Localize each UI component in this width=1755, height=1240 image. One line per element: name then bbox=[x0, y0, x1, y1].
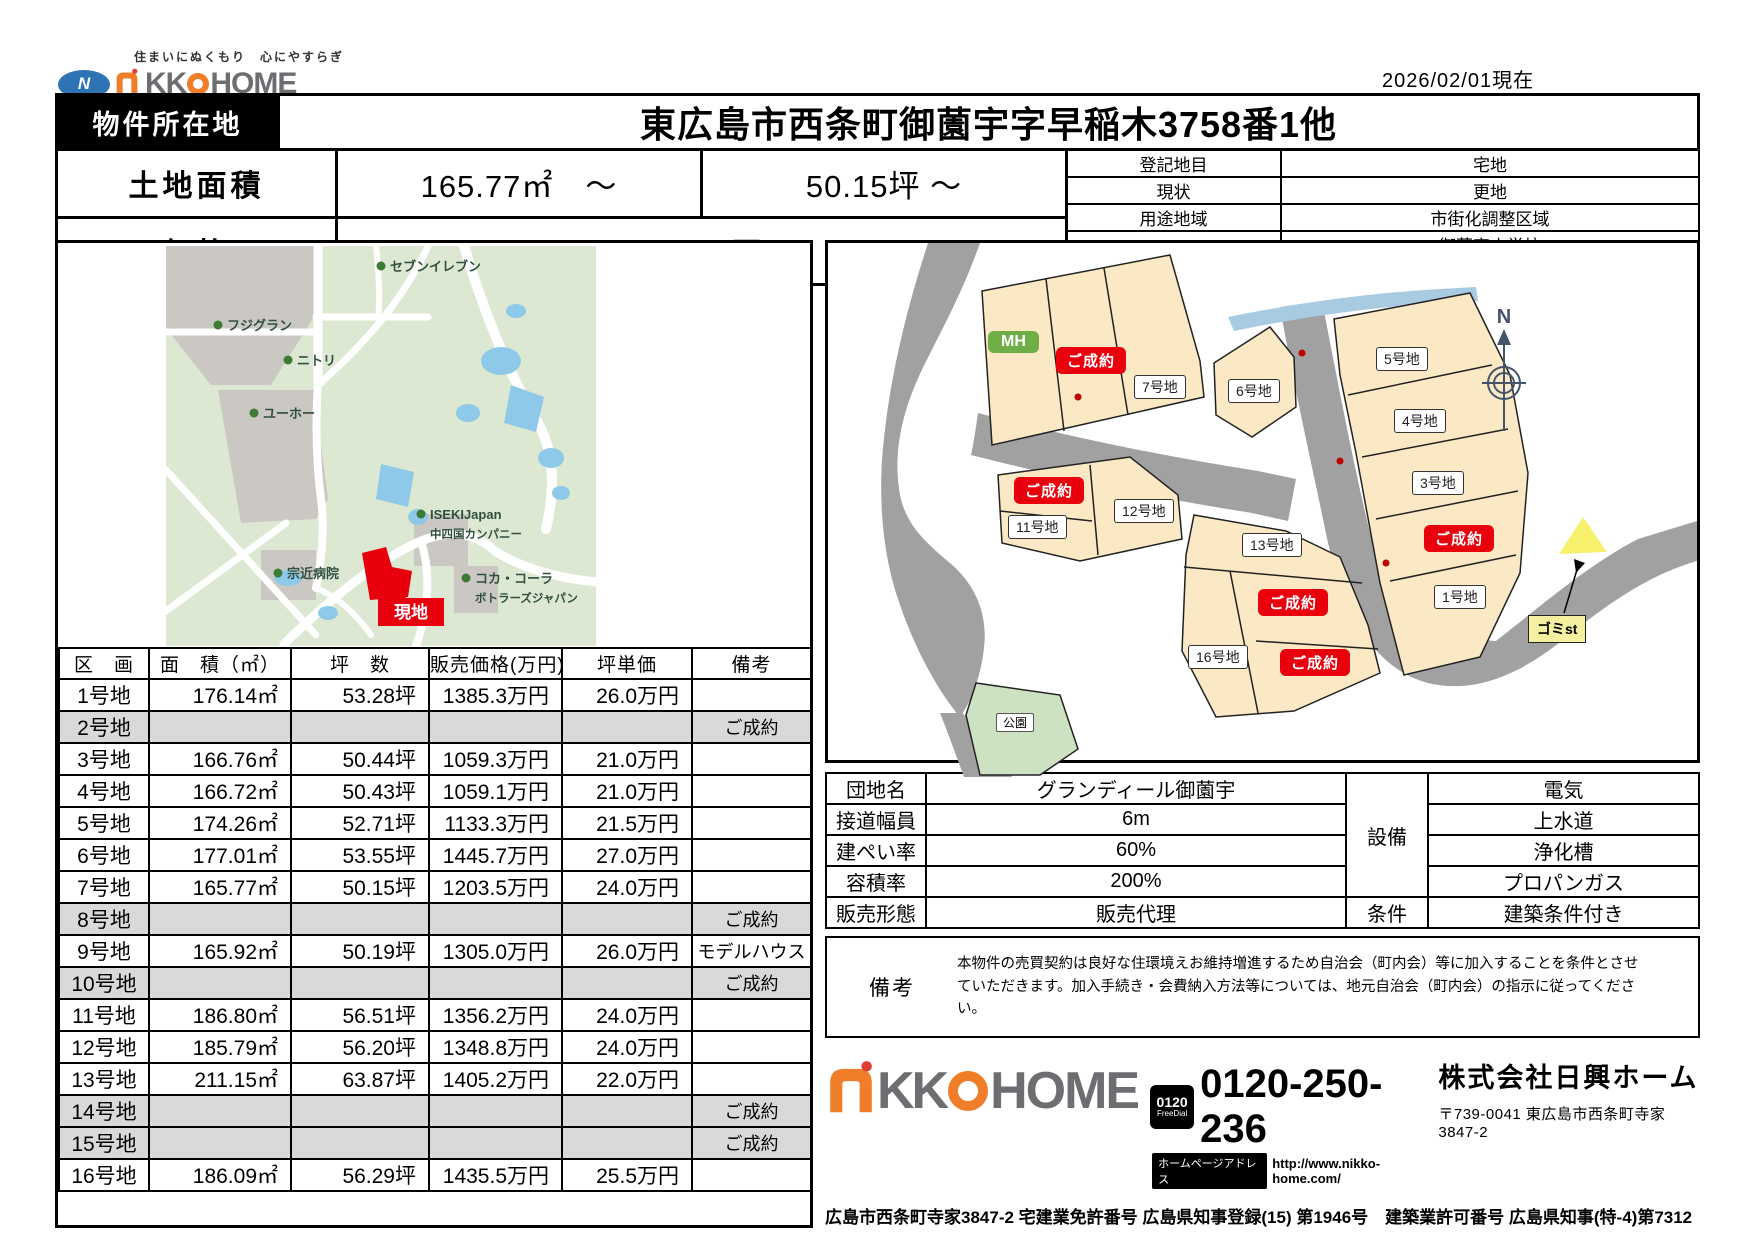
table-cell: 63.87坪 bbox=[291, 1063, 429, 1095]
table-cell bbox=[692, 871, 811, 903]
table-cell: 211.15㎡ bbox=[149, 1063, 291, 1095]
table-cell: 52.71坪 bbox=[291, 807, 429, 839]
table-cell bbox=[562, 1095, 692, 1127]
table-cell: 24.0万円 bbox=[562, 999, 692, 1031]
table-row: 1号地176.14㎡53.28坪1385.3万円26.0万円 bbox=[59, 679, 811, 711]
right-column: N MH ご成約 7号地 6号地 5号地 4号地 3号地 ご成約 bbox=[825, 240, 1700, 1228]
col-header: 面 積（㎡） bbox=[149, 648, 291, 679]
table-cell: 165.92㎡ bbox=[149, 935, 291, 967]
info-label: 用途地域 bbox=[1066, 204, 1281, 231]
nikko-home-logo-footer: KK HOME bbox=[825, 1060, 1138, 1121]
location-value: 東広島市西条町御薗宇字早稲木3758番1他 bbox=[279, 95, 1699, 150]
land-area-label: 土地面積 bbox=[57, 150, 337, 218]
poi-label: フジグラン bbox=[227, 318, 292, 333]
table-cell bbox=[291, 903, 429, 935]
table-cell bbox=[692, 743, 811, 775]
poi-sublabel: 中四国カンパニー bbox=[430, 527, 522, 541]
equipment-value: 浄化槽 bbox=[1428, 835, 1699, 866]
area-map: セブンイレブン フジグラン ニトリ ユーホー ISEKIJapan 中四国カンパ… bbox=[58, 243, 810, 647]
table-cell: 25.5万円 bbox=[562, 1159, 692, 1191]
table-cell: 50.19坪 bbox=[291, 935, 429, 967]
table-cell: 1435.5万円 bbox=[429, 1159, 562, 1191]
table-cell bbox=[562, 903, 692, 935]
table-cell bbox=[291, 1127, 429, 1159]
table-cell: 6号地 bbox=[59, 839, 149, 871]
info-value: 更地 bbox=[1281, 177, 1699, 204]
equipment-value: プロパンガス bbox=[1428, 866, 1699, 897]
poi-label: コカ・コーラ bbox=[475, 571, 553, 586]
table-cell: 15号地 bbox=[59, 1127, 149, 1159]
detail-value: 60% bbox=[926, 835, 1346, 866]
model-house-badge: MH bbox=[988, 331, 1039, 353]
lot-layout-diagram: N MH ご成約 7号地 6号地 5号地 4号地 3号地 ご成約 bbox=[825, 240, 1700, 763]
park-label: 公園 bbox=[996, 713, 1034, 732]
homepage-label: ホームページアドレス bbox=[1152, 1153, 1267, 1189]
lot-label-6: 6号地 bbox=[1228, 379, 1280, 403]
table-cell: 24.0万円 bbox=[562, 1031, 692, 1063]
sold-badge: ご成約 bbox=[1258, 589, 1328, 616]
land-area-tsubo: 50.15坪 ～ bbox=[702, 150, 1067, 218]
table-cell bbox=[692, 775, 811, 807]
table-cell: 1059.1万円 bbox=[429, 775, 562, 807]
detail-label: 団地名 bbox=[826, 773, 926, 804]
poi-sublabel: ボトラーズジャパン bbox=[475, 591, 578, 605]
table-row: 3号地166.76㎡50.44坪1059.3万円21.0万円 bbox=[59, 743, 811, 775]
table-cell: 7号地 bbox=[59, 871, 149, 903]
table-row: 11号地186.80㎡56.51坪1356.2万円24.0万円 bbox=[59, 999, 811, 1031]
col-header: 坪 数 bbox=[291, 648, 429, 679]
detail-label: 建ぺい率 bbox=[826, 835, 926, 866]
table-cell bbox=[149, 967, 291, 999]
table-cell: 21.5万円 bbox=[562, 807, 692, 839]
table-cell: 4号地 bbox=[59, 775, 149, 807]
table-cell bbox=[692, 1031, 811, 1063]
company-name: 株式会社日興ホーム bbox=[1438, 1056, 1700, 1095]
table-cell: ご成約 bbox=[692, 967, 811, 999]
table-cell: 176.14㎡ bbox=[149, 679, 291, 711]
table-cell bbox=[291, 967, 429, 999]
table-row: 9号地165.92㎡50.19坪1305.0万円26.0万円モデルハウス bbox=[59, 935, 811, 967]
table-cell bbox=[429, 1127, 562, 1159]
sold-badge: ご成約 bbox=[1424, 525, 1494, 552]
table-cell bbox=[429, 711, 562, 743]
detail-label: 容積率 bbox=[826, 866, 926, 897]
col-header: 坪単価 bbox=[562, 648, 692, 679]
table-cell bbox=[429, 903, 562, 935]
table-row: 12号地185.79㎡56.20坪1348.8万円24.0万円 bbox=[59, 1031, 811, 1063]
table-cell bbox=[149, 1127, 291, 1159]
table-cell: 50.43坪 bbox=[291, 775, 429, 807]
brand-slogan: 住まいにぬくもり 心にやすらぎ bbox=[134, 48, 344, 65]
table-cell bbox=[692, 1063, 811, 1095]
table-row: 16号地186.09㎡56.29坪1435.5万円25.5万円 bbox=[59, 1159, 811, 1191]
info-label: 登記地目 bbox=[1066, 150, 1281, 178]
poi-label: セブンイレブン bbox=[390, 259, 481, 274]
table-cell: ご成約 bbox=[692, 711, 811, 743]
table-cell bbox=[562, 967, 692, 999]
street-map-graphic: セブンイレブン フジグラン ニトリ ユーホー ISEKIJapan 中四国カンパ… bbox=[166, 246, 596, 646]
equipment-label: 設備 bbox=[1346, 773, 1428, 897]
table-cell: ご成約 bbox=[692, 903, 811, 935]
lot-table-body: 1号地176.14㎡53.28坪1385.3万円26.0万円2号地ご成約3号地1… bbox=[59, 679, 811, 1191]
table-cell: 5号地 bbox=[59, 807, 149, 839]
lot-label-13: 13号地 bbox=[1242, 533, 1302, 557]
table-cell: 13号地 bbox=[59, 1063, 149, 1095]
table-cell: 53.28坪 bbox=[291, 679, 429, 711]
table-cell bbox=[562, 1127, 692, 1159]
remarks-box: 備考 本物件の売買契約は良好な住環境えお維持増進するため自治会（町内会）等に加入… bbox=[825, 936, 1700, 1038]
table-cell: 3号地 bbox=[59, 743, 149, 775]
lot-table-header-row: 区 画 面 積（㎡） 坪 数 販売価格(万円) 坪単価 備考 bbox=[59, 648, 811, 679]
lot-layout-graphic: N bbox=[828, 243, 1697, 777]
detail-value: 販売代理 bbox=[926, 897, 1346, 928]
col-header: 販売価格(万円) bbox=[429, 648, 562, 679]
compass-north-label: N bbox=[1497, 306, 1511, 328]
table-row: 10号地ご成約 bbox=[59, 967, 811, 999]
land-area-sqm: 165.77㎡ ～ bbox=[337, 150, 702, 218]
table-row: 15号地ご成約 bbox=[59, 1127, 811, 1159]
table-row: 4号地166.72㎡50.43坪1059.1万円21.0万円 bbox=[59, 775, 811, 807]
table-cell: 1133.3万円 bbox=[429, 807, 562, 839]
table-cell: 174.26㎡ bbox=[149, 807, 291, 839]
details-table: 団地名 グランディール御薗宇 設備 電気 接道幅員 6m 上水道 建ぺい率 60… bbox=[825, 772, 1700, 929]
table-cell: 177.01㎡ bbox=[149, 839, 291, 871]
detail-label: 販売形態 bbox=[826, 897, 926, 928]
table-cell bbox=[562, 711, 692, 743]
detail-value: グランディール御薗宇 bbox=[926, 773, 1346, 804]
table-cell: 166.72㎡ bbox=[149, 775, 291, 807]
poi-label: ユーホー bbox=[263, 406, 315, 421]
lot-label-3: 3号地 bbox=[1412, 471, 1464, 495]
info-value: 宅地 bbox=[1281, 150, 1699, 178]
table-cell: 56.20坪 bbox=[291, 1031, 429, 1063]
remarks-text: 本物件の売買契約は良好な住環境えお維持増進するため自治会（町内会）等に加入するこ… bbox=[957, 943, 1657, 1030]
table-cell: 22.0万円 bbox=[562, 1063, 692, 1095]
table-cell bbox=[291, 711, 429, 743]
table-cell: 185.79㎡ bbox=[149, 1031, 291, 1063]
poi-label: ニトリ bbox=[297, 353, 336, 368]
detail-value: 6m bbox=[926, 804, 1346, 835]
sold-badge: ご成約 bbox=[1056, 347, 1126, 374]
equipment-value: 電気 bbox=[1428, 773, 1699, 804]
table-cell: 50.15坪 bbox=[291, 871, 429, 903]
detail-label: 接道幅員 bbox=[826, 804, 926, 835]
location-table: 物件所在地 東広島市西条町御薗宇字早稲木3758番1他 bbox=[55, 93, 1700, 151]
table-cell: 166.76㎡ bbox=[149, 743, 291, 775]
table-cell: 16号地 bbox=[59, 1159, 149, 1191]
table-row: 14号地ご成約 bbox=[59, 1095, 811, 1127]
table-cell: 24.0万円 bbox=[562, 871, 692, 903]
location-label: 物件所在地 bbox=[57, 95, 279, 150]
lot-label-7: 7号地 bbox=[1134, 375, 1186, 399]
table-cell: 1号地 bbox=[59, 679, 149, 711]
table-cell: 1305.0万円 bbox=[429, 935, 562, 967]
remarks-label: 備考 bbox=[827, 972, 957, 1002]
table-cell: 1445.7万円 bbox=[429, 839, 562, 871]
table-cell bbox=[429, 967, 562, 999]
lot-label-16: 16号地 bbox=[1188, 645, 1248, 669]
table-cell: 2号地 bbox=[59, 711, 149, 743]
sold-badge: ご成約 bbox=[1280, 649, 1350, 676]
equipment-value: 上水道 bbox=[1428, 804, 1699, 835]
info-label: 現状 bbox=[1066, 177, 1281, 204]
table-cell: 1385.3万円 bbox=[429, 679, 562, 711]
col-header: 備考 bbox=[692, 648, 811, 679]
table-cell bbox=[149, 903, 291, 935]
table-cell bbox=[429, 1095, 562, 1127]
left-column: セブンイレブン フジグラン ニトリ ユーホー ISEKIJapan 中四国カンパ… bbox=[55, 240, 813, 1228]
sold-badge: ご成約 bbox=[1014, 477, 1084, 504]
company-address: 〒739-0041 東広島市西条町寺家3847-2 bbox=[1438, 1103, 1700, 1141]
table-cell: 1203.5万円 bbox=[429, 871, 562, 903]
table-row: 8号地ご成約 bbox=[59, 903, 811, 935]
table-cell: 56.51坪 bbox=[291, 999, 429, 1031]
table-cell: 56.29坪 bbox=[291, 1159, 429, 1191]
homepage-url: http://www.nikko-home.com/ bbox=[1272, 1156, 1438, 1186]
lot-label-5: 5号地 bbox=[1376, 347, 1428, 371]
logo-text-kk: KK bbox=[877, 1061, 946, 1121]
date-note: 2026/02/01現在 bbox=[1382, 64, 1534, 93]
lot-label-12: 12号地 bbox=[1114, 499, 1174, 523]
table-cell bbox=[149, 1095, 291, 1127]
table-cell bbox=[692, 1159, 811, 1191]
license-info: 広島市西条町寺家3847-2 宅建業免許番号 広島県知事登録(15) 第1946… bbox=[825, 1203, 1700, 1228]
table-cell: ご成約 bbox=[692, 1095, 811, 1127]
house-icon bbox=[825, 1060, 877, 1121]
table-cell: 1348.8万円 bbox=[429, 1031, 562, 1063]
table-row: 5号地174.26㎡52.71坪1133.3万円21.5万円 bbox=[59, 807, 811, 839]
table-cell: 53.55坪 bbox=[291, 839, 429, 871]
info-value: 市街化調整区域 bbox=[1281, 204, 1699, 231]
logo-o-icon bbox=[187, 73, 209, 95]
table-cell: 1059.3万円 bbox=[429, 743, 562, 775]
table-cell: 9号地 bbox=[59, 935, 149, 967]
poi-label: 宗近病院 bbox=[287, 566, 339, 581]
table-cell: 10号地 bbox=[59, 967, 149, 999]
lot-price-table: 区 画 面 積（㎡） 坪 数 販売価格(万円) 坪単価 備考 1号地176.14… bbox=[58, 647, 812, 1192]
table-cell bbox=[291, 1095, 429, 1127]
lot-label-4: 4号地 bbox=[1394, 409, 1446, 433]
table-cell: 14号地 bbox=[59, 1095, 149, 1127]
table-cell bbox=[692, 679, 811, 711]
table-cell: 26.0万円 bbox=[562, 679, 692, 711]
table-cell: ご成約 bbox=[692, 1127, 811, 1159]
detail-value: 200% bbox=[926, 866, 1346, 897]
table-cell bbox=[692, 807, 811, 839]
table-cell bbox=[149, 711, 291, 743]
table-cell bbox=[692, 999, 811, 1031]
table-row: 13号地211.15㎡63.87坪1405.2万円22.0万円 bbox=[59, 1063, 811, 1095]
condition-value: 建築条件付き bbox=[1428, 897, 1699, 928]
condition-label: 条件 bbox=[1346, 897, 1428, 928]
table-cell: 26.0万円 bbox=[562, 935, 692, 967]
trash-station-label: ゴミst bbox=[1528, 615, 1586, 643]
lot-label-1: 1号地 bbox=[1434, 585, 1486, 609]
col-header: 区 画 bbox=[59, 648, 149, 679]
table-cell: 12号地 bbox=[59, 1031, 149, 1063]
site-label: 現地 bbox=[394, 602, 428, 622]
table-cell: 186.09㎡ bbox=[149, 1159, 291, 1191]
table-cell: モデルハウス bbox=[692, 935, 811, 967]
table-cell: 21.0万円 bbox=[562, 743, 692, 775]
table-row: 2号地ご成約 bbox=[59, 711, 811, 743]
logo-o-icon bbox=[948, 1071, 988, 1111]
table-cell: 165.77㎡ bbox=[149, 871, 291, 903]
phone-number: 0120-250-236 bbox=[1200, 1062, 1438, 1152]
table-row: 7号地165.77㎡50.15坪1203.5万円24.0万円 bbox=[59, 871, 811, 903]
lot-label-11: 11号地 bbox=[1008, 515, 1067, 539]
table-cell: 50.44坪 bbox=[291, 743, 429, 775]
table-cell: 1356.2万円 bbox=[429, 999, 562, 1031]
footer: KK HOME 0120 FreeDial 0120-250-236 bbox=[825, 1054, 1700, 1228]
table-cell: 8号地 bbox=[59, 903, 149, 935]
table-cell: 27.0万円 bbox=[562, 839, 692, 871]
table-cell: 11号地 bbox=[59, 999, 149, 1031]
poi-label: ISEKIJapan bbox=[430, 507, 502, 522]
flyer-page: 住まいにぬくもり 心にやすらぎ N KK HOME 2026/02/01現在 物… bbox=[0, 0, 1755, 1240]
table-cell bbox=[692, 839, 811, 871]
logo-text-home: HOME bbox=[990, 1061, 1138, 1121]
table-row: 6号地177.01㎡53.55坪1445.7万円27.0万円 bbox=[59, 839, 811, 871]
table-cell: 1405.2万円 bbox=[429, 1063, 562, 1095]
table-cell: 186.80㎡ bbox=[149, 999, 291, 1031]
table-cell: 21.0万円 bbox=[562, 775, 692, 807]
freedial-icon: 0120 FreeDial bbox=[1150, 1085, 1194, 1129]
